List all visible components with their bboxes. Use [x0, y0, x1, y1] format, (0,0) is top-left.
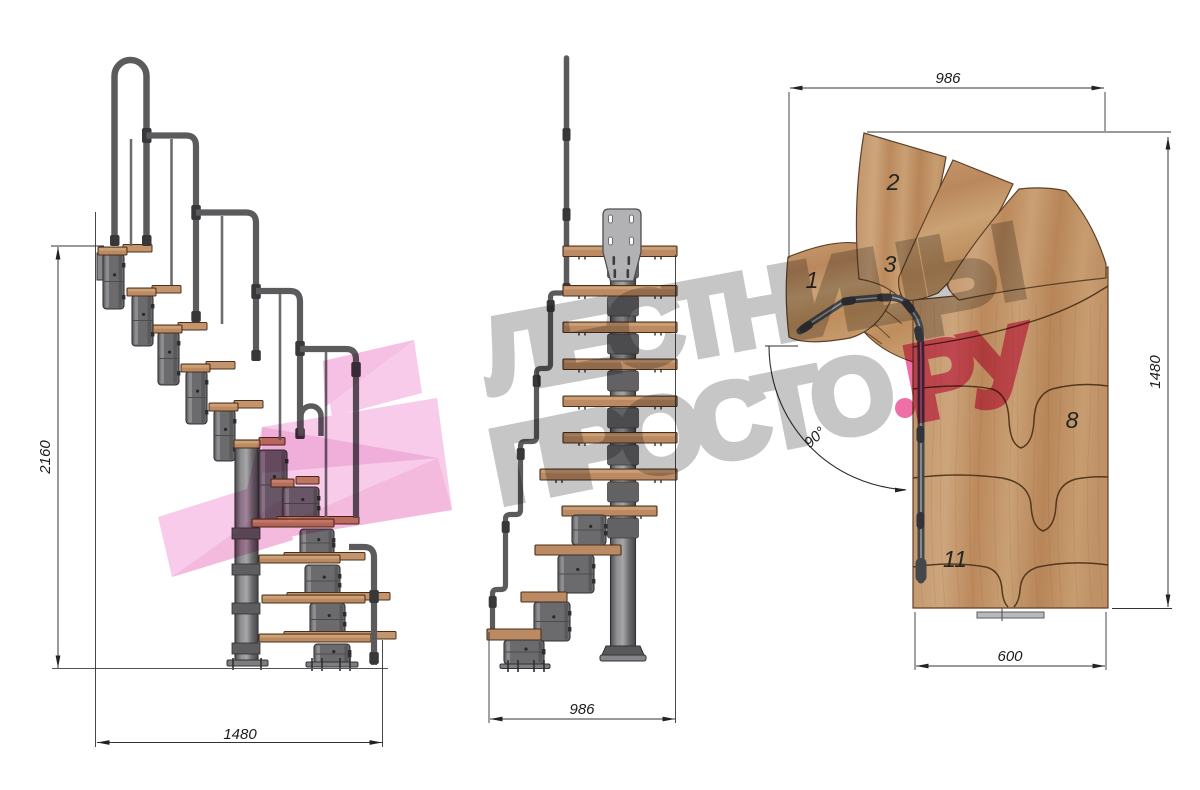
- svg-text:1480: 1480: [1147, 355, 1164, 389]
- svg-text:986: 986: [569, 701, 595, 718]
- svg-text:2: 2: [886, 169, 900, 195]
- svg-text:986: 986: [935, 70, 961, 87]
- svg-text:600: 600: [997, 648, 1023, 665]
- svg-text:1480: 1480: [223, 726, 257, 743]
- svg-text:11: 11: [943, 546, 967, 572]
- svg-text:2160: 2160: [37, 440, 54, 475]
- svg-text:8: 8: [1066, 407, 1079, 433]
